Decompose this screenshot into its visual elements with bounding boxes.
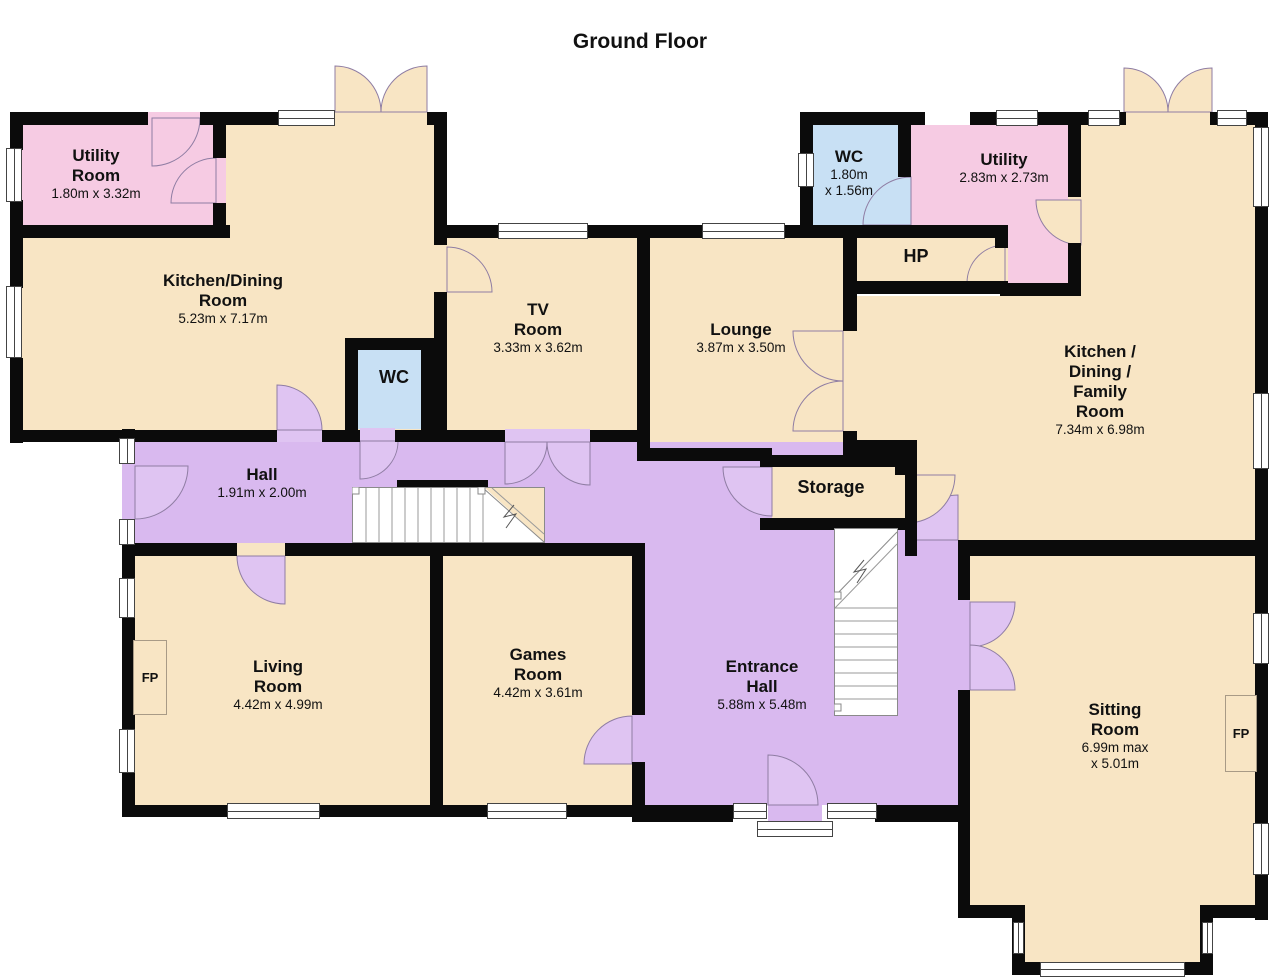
window (487, 803, 567, 819)
window (1217, 110, 1247, 126)
wall-segment (632, 805, 733, 822)
door-arc (171, 158, 216, 203)
window (119, 578, 135, 618)
french-door-arc (1124, 68, 1168, 112)
french-door-arc (1168, 68, 1212, 112)
window (733, 803, 767, 819)
window (119, 519, 135, 545)
room-label-lounge: Lounge 3.87m x 3.50m (641, 320, 841, 356)
wall-segment (320, 805, 487, 817)
wall-segment (122, 805, 227, 817)
wall-segment (395, 430, 505, 442)
door-arc (277, 385, 322, 430)
door-arc (447, 247, 492, 292)
wall-segment (895, 467, 907, 475)
wall-segment (1200, 905, 1268, 918)
door-arc (1036, 200, 1081, 245)
wall-segment (970, 112, 996, 125)
window (757, 821, 833, 837)
window (1013, 922, 1024, 954)
wall-segment (1038, 112, 1088, 125)
window (498, 223, 588, 239)
window (1088, 110, 1120, 126)
wall-segment (10, 112, 23, 150)
wall-segment (800, 225, 1008, 238)
door-arc (967, 245, 1005, 283)
wall-segment (958, 690, 970, 918)
wall-segment (800, 112, 925, 125)
wall-segment (1255, 207, 1268, 395)
french-door-arc (335, 66, 381, 112)
window (996, 110, 1038, 126)
room-label-sitting: Sitting Room 6.99m max x 5.01m (1015, 700, 1215, 772)
fireplace-label: FP (1233, 726, 1250, 741)
wall-segment (567, 805, 632, 817)
window (702, 223, 785, 239)
room-label-hp: HP (876, 246, 956, 266)
room-label-entrance: Entrance Hall 5.88m x 5.48m (662, 657, 862, 713)
room-label-utility-right: Utility 2.83m x 2.73m (904, 150, 1104, 186)
wall-segment (122, 543, 237, 556)
wall-segment (200, 112, 278, 125)
room-label-storage: Storage (761, 477, 901, 497)
wall-segment (434, 225, 498, 238)
wall-segment (995, 238, 1008, 248)
wall-segment (345, 338, 434, 350)
room-label-wc-small: WC (354, 367, 434, 387)
wall-segment (10, 200, 23, 288)
door-arc (135, 466, 188, 519)
wall-segment (213, 203, 226, 230)
wall-segment (843, 281, 1008, 294)
fireplace-living: FP (133, 640, 167, 715)
door-arc (768, 755, 818, 805)
wall-segment (10, 430, 277, 442)
wall-segment (1210, 112, 1217, 125)
wall-segment (322, 430, 360, 442)
door-arc (970, 645, 1015, 690)
staircase-hall (352, 487, 545, 543)
wall-segment (1120, 112, 1126, 125)
window (1202, 922, 1213, 954)
floor-plan: FP FP Ground Floor Utility Room 1.80m x … (0, 0, 1280, 980)
door-arc (970, 602, 1015, 647)
room-label-utility-left: Utility Room 1.80m x 3.32m (16, 146, 176, 202)
room-label-games: Games Room 4.42m x 3.61m (438, 645, 638, 701)
room-label-hall: Hall 1.91m x 2.00m (182, 465, 342, 501)
wall-segment (843, 440, 917, 455)
window (119, 438, 135, 464)
window (227, 803, 320, 819)
wall-segment (875, 805, 968, 822)
wall-segment (213, 112, 226, 158)
wall-segment (1255, 556, 1268, 615)
room-label-kitchen-family: Kitchen / Dining / Family Room 7.34m x 6… (1000, 342, 1200, 438)
wall-segment (637, 448, 772, 461)
wall-segment (22, 225, 230, 238)
window (6, 286, 22, 358)
wall-segment (958, 556, 970, 600)
wall-segment (1000, 283, 1081, 296)
door-arc (793, 381, 843, 431)
window (1253, 613, 1269, 664)
wall-segment (958, 905, 1025, 918)
wall-segment (760, 455, 907, 467)
room-label-wc-top: WC 1.80m x 1.56m (809, 147, 889, 199)
window (1253, 823, 1269, 875)
wall-segment (958, 540, 1268, 556)
window (1253, 393, 1269, 469)
wall-segment (421, 350, 434, 430)
wall-segment (10, 112, 148, 125)
wall-segment (1255, 112, 1268, 127)
window (1040, 962, 1185, 977)
wall-segment (843, 225, 857, 331)
window (278, 110, 335, 126)
fireplace-sitting: FP (1225, 695, 1257, 772)
window (1253, 127, 1269, 207)
window (827, 803, 877, 819)
door-arc (547, 442, 590, 485)
fireplace-label: FP (142, 670, 159, 685)
door-arc (360, 441, 398, 479)
door-arc (505, 442, 547, 484)
page-title: Ground Floor (440, 30, 840, 54)
french-door-arc (381, 66, 427, 112)
room-label-kitchen-dining: Kitchen/Dining Room 5.23m x 7.17m (103, 271, 343, 327)
door-arc (584, 716, 632, 764)
wall-segment (434, 292, 447, 430)
room-label-living: Living Room 4.42m x 4.99m (178, 657, 378, 713)
room-label-tv: TV Room 3.33m x 3.62m (448, 300, 628, 356)
window (119, 729, 135, 773)
wall-segment (285, 543, 645, 556)
door-arc (237, 556, 285, 604)
